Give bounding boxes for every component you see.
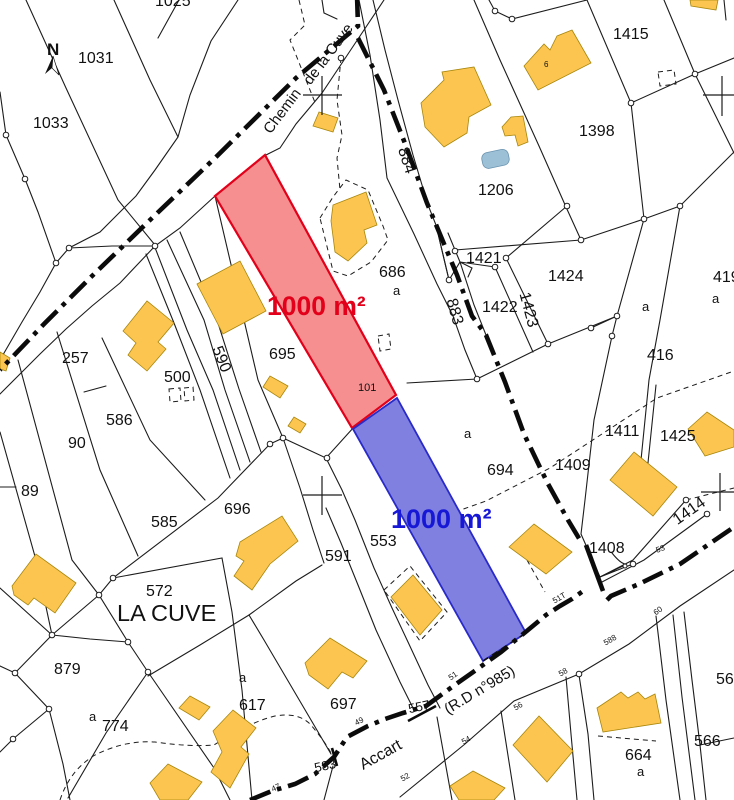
svg-text:1411: 1411 xyxy=(605,423,640,440)
svg-text:6: 6 xyxy=(544,60,549,69)
svg-text:1415: 1415 xyxy=(613,26,649,43)
svg-text:1206: 1206 xyxy=(478,182,514,199)
svg-text:257: 257 xyxy=(62,350,89,367)
svg-text:591: 591 xyxy=(325,548,352,565)
svg-text:1421: 1421 xyxy=(466,250,502,267)
svg-text:101: 101 xyxy=(358,382,376,394)
svg-text:89: 89 xyxy=(21,483,39,500)
svg-text:585: 585 xyxy=(151,514,178,531)
svg-text:774: 774 xyxy=(102,718,129,735)
svg-text:1422: 1422 xyxy=(482,299,518,316)
svg-text:565: 565 xyxy=(716,671,734,688)
svg-text:90: 90 xyxy=(68,435,86,452)
svg-text:416: 416 xyxy=(647,347,674,364)
svg-text:553: 553 xyxy=(370,533,397,550)
svg-text:a: a xyxy=(637,764,645,779)
svg-text:a: a xyxy=(239,670,247,685)
svg-text:1398: 1398 xyxy=(579,123,615,140)
svg-text:1424: 1424 xyxy=(548,268,584,285)
svg-text:a: a xyxy=(642,299,650,314)
svg-text:696: 696 xyxy=(224,501,251,518)
svg-text:694: 694 xyxy=(487,462,514,479)
svg-text:1409: 1409 xyxy=(555,457,591,474)
svg-text:1000 m²: 1000 m² xyxy=(267,291,366,321)
svg-text:a: a xyxy=(89,709,97,724)
svg-text:1033: 1033 xyxy=(33,115,69,132)
svg-text:1425: 1425 xyxy=(660,428,696,445)
svg-text:1031: 1031 xyxy=(78,50,114,67)
svg-text:1000 m²: 1000 m² xyxy=(391,504,492,534)
svg-text:419: 419 xyxy=(713,269,734,286)
svg-text:1408: 1408 xyxy=(589,540,625,557)
svg-text:697: 697 xyxy=(330,696,357,713)
svg-text:572: 572 xyxy=(146,583,173,600)
svg-text:a: a xyxy=(393,283,401,298)
svg-text:1025: 1025 xyxy=(155,0,191,10)
svg-text:a: a xyxy=(712,291,720,306)
svg-text:a: a xyxy=(464,426,472,441)
svg-text:879: 879 xyxy=(54,661,81,678)
svg-text:617: 617 xyxy=(239,697,266,714)
svg-text:664: 664 xyxy=(625,747,652,764)
svg-text:695: 695 xyxy=(269,346,296,363)
svg-text:686: 686 xyxy=(379,264,406,281)
svg-text:566: 566 xyxy=(694,733,721,750)
svg-text:500: 500 xyxy=(164,369,191,386)
svg-text:LA CUVE: LA CUVE xyxy=(117,600,216,626)
svg-text:586: 586 xyxy=(106,412,133,429)
